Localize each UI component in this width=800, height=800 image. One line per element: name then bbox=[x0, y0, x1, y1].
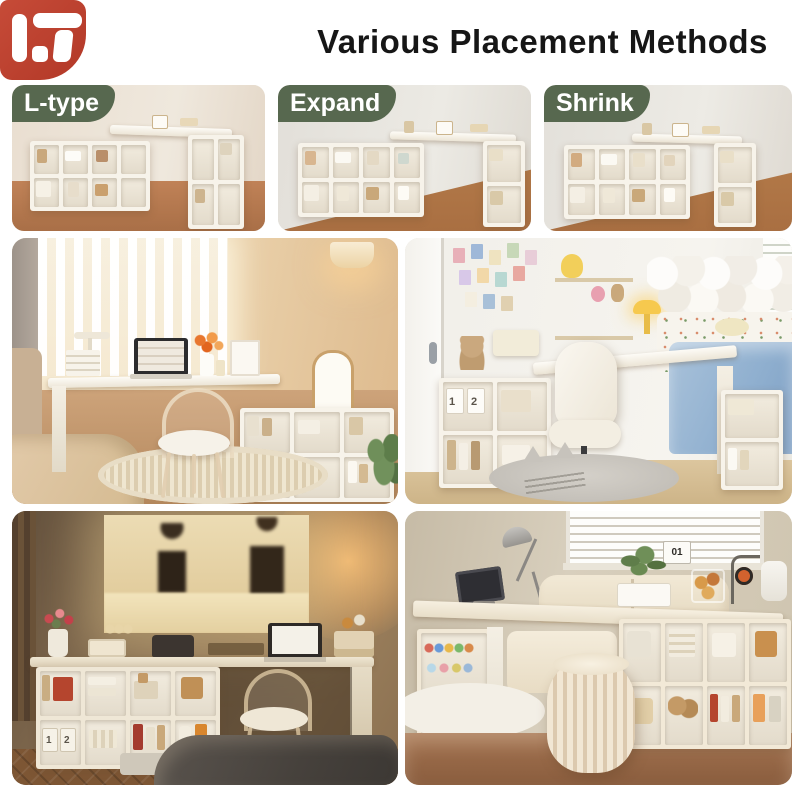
typewriter bbox=[152, 635, 194, 657]
egg-tray bbox=[104, 623, 134, 635]
white-speaker bbox=[761, 561, 787, 601]
box-number: 1 bbox=[46, 735, 56, 747]
cubby-cell bbox=[725, 442, 779, 486]
cubby-cell bbox=[130, 671, 171, 716]
box-number: 2 bbox=[471, 396, 483, 410]
photo-bedroom-corner-desk bbox=[12, 238, 398, 504]
thumb-l-type: L-type bbox=[12, 85, 265, 231]
plant bbox=[364, 434, 398, 490]
cubby-cell bbox=[707, 686, 745, 745]
cubby-cell bbox=[394, 182, 421, 213]
desk-leg bbox=[52, 386, 66, 472]
cubby-cell bbox=[599, 149, 626, 180]
flowers bbox=[40, 607, 76, 633]
paper-tray bbox=[66, 350, 100, 376]
radio bbox=[88, 639, 126, 657]
desk-decor bbox=[642, 123, 652, 135]
thumb-expand: Expand bbox=[278, 85, 531, 231]
plush-toy bbox=[561, 254, 583, 278]
badge-expand: Expand bbox=[278, 85, 396, 122]
cubby-cell bbox=[725, 394, 779, 438]
arch-mirror bbox=[312, 350, 354, 413]
cubby-cell bbox=[394, 147, 421, 178]
cubby-cell bbox=[497, 382, 547, 431]
cubby-cell bbox=[718, 147, 752, 183]
desk-decor bbox=[180, 118, 198, 126]
cubby-cell bbox=[660, 184, 687, 215]
cat-rug-ear bbox=[523, 446, 543, 462]
cubby-cell bbox=[629, 149, 656, 180]
teddy-bears bbox=[668, 696, 698, 724]
cubby-cell bbox=[121, 145, 146, 174]
bottles bbox=[340, 611, 370, 631]
projection-figure bbox=[152, 523, 192, 593]
teddy-bear bbox=[457, 336, 487, 370]
cubby-shelf bbox=[619, 619, 791, 749]
cat-rug-ear bbox=[555, 442, 575, 458]
cubby-cell bbox=[665, 686, 703, 745]
laptop-base bbox=[264, 657, 326, 662]
pen-cup bbox=[216, 360, 225, 376]
cubby-cell bbox=[218, 184, 240, 225]
badge-shrink: Shrink bbox=[544, 85, 650, 122]
wall-card bbox=[507, 243, 519, 258]
planter-box bbox=[617, 583, 671, 607]
thumb-shrink: Shrink bbox=[544, 85, 792, 231]
wall-card bbox=[453, 248, 465, 263]
dark-bed bbox=[154, 735, 398, 785]
laptop-base bbox=[130, 374, 192, 379]
desk-decor bbox=[404, 121, 414, 133]
cubby-cell bbox=[85, 671, 126, 716]
cubby-cell bbox=[302, 147, 329, 178]
box-number: 1 bbox=[449, 396, 461, 410]
desk-side-cubby bbox=[721, 390, 783, 490]
stool-top bbox=[553, 653, 629, 675]
side-cubby-unit bbox=[714, 143, 756, 227]
wall-projection bbox=[104, 515, 309, 633]
cubby-cell bbox=[192, 184, 214, 225]
flowers bbox=[190, 330, 224, 356]
page-title: Various Placement Methods bbox=[295, 16, 790, 68]
wall-card bbox=[459, 270, 471, 285]
cubby-shelf bbox=[298, 143, 424, 217]
file-rack bbox=[230, 340, 260, 376]
wall-card bbox=[501, 296, 513, 311]
cubby-cell bbox=[92, 145, 117, 174]
photo-sofa-back-desk: 01 bbox=[405, 511, 792, 785]
laptop bbox=[134, 338, 188, 376]
flower-jug bbox=[48, 629, 68, 657]
plant bbox=[613, 545, 671, 585]
bubble-headboard bbox=[647, 256, 792, 314]
cubby-cell bbox=[192, 139, 214, 180]
desk-decor bbox=[152, 115, 168, 129]
wall-card bbox=[495, 272, 507, 287]
desk-lamp bbox=[74, 332, 110, 339]
side-cubby-unit bbox=[483, 141, 525, 227]
toy bbox=[611, 284, 624, 302]
wall-card bbox=[513, 266, 525, 281]
cubby-cell bbox=[665, 623, 703, 682]
cubby-cell bbox=[63, 145, 88, 174]
cubby-cell bbox=[568, 149, 595, 180]
headphones bbox=[735, 567, 753, 585]
cubby-cell bbox=[363, 182, 390, 213]
cubby-cell bbox=[487, 145, 521, 182]
desk-decor bbox=[702, 126, 720, 134]
cubby-cell bbox=[487, 186, 521, 223]
desk-clutter bbox=[208, 643, 264, 655]
wall-card bbox=[525, 250, 537, 265]
cubby-cell bbox=[218, 139, 240, 180]
cubby-cell bbox=[660, 149, 687, 180]
cubby-cell bbox=[34, 145, 59, 174]
cubby-cell bbox=[363, 147, 390, 178]
wall-lamp bbox=[330, 242, 374, 268]
cubby-cell bbox=[718, 187, 752, 223]
logo-tbar-icon bbox=[33, 13, 82, 28]
cubby-shelf bbox=[564, 145, 690, 219]
logo-stem-icon bbox=[52, 30, 73, 62]
cubby-cell bbox=[92, 178, 117, 207]
laptop bbox=[268, 623, 322, 659]
wall-card bbox=[471, 244, 483, 259]
door-handle bbox=[429, 342, 437, 364]
logo-bar-icon bbox=[12, 14, 27, 62]
cubby-cell bbox=[623, 623, 661, 682]
desk-decor bbox=[672, 123, 689, 137]
cubby-cell: 1 2 bbox=[443, 382, 493, 431]
cosmetics-caddy bbox=[334, 631, 374, 657]
cubby-cell bbox=[121, 178, 146, 207]
calendar-day: 01 bbox=[671, 547, 682, 558]
cubby-cell bbox=[63, 178, 88, 207]
curtain bbox=[12, 511, 36, 721]
desk-decor bbox=[470, 124, 488, 132]
cubby-cell bbox=[443, 435, 493, 484]
cream-box bbox=[493, 330, 539, 356]
plush-on-bed bbox=[715, 318, 749, 336]
cubby-cell bbox=[333, 147, 360, 178]
projection-figure bbox=[244, 517, 290, 603]
box-number: 2 bbox=[64, 735, 74, 747]
cubby-cell bbox=[34, 178, 59, 207]
badge-l-type: L-type bbox=[12, 85, 115, 122]
cubby-cell: 1 2 bbox=[40, 720, 81, 765]
cubby-cell bbox=[302, 182, 329, 213]
desk-decor bbox=[436, 121, 453, 135]
flower-vase bbox=[200, 354, 214, 376]
ghost-chair-leg bbox=[192, 454, 196, 494]
cubby-shelf bbox=[30, 141, 150, 211]
logo-dot-icon bbox=[32, 46, 48, 62]
photo-bedroom-desk-by-bed: 1 2 bbox=[405, 238, 792, 504]
brand-logo bbox=[0, 0, 86, 80]
cubby-cell bbox=[40, 671, 81, 716]
toy bbox=[591, 286, 605, 302]
headboard bbox=[12, 348, 42, 448]
product-infographic: Various Placement Methods L-type Expand bbox=[0, 0, 800, 800]
snack-jar bbox=[691, 569, 725, 603]
office-chair-back bbox=[555, 342, 617, 428]
photo-night-projection-desk: 1 2 bbox=[12, 511, 398, 785]
wall-card bbox=[477, 268, 489, 283]
cubby-cell bbox=[749, 686, 787, 745]
cubby-cell bbox=[568, 184, 595, 215]
cubby-cell bbox=[629, 184, 656, 215]
cubby-cell bbox=[294, 412, 340, 453]
wall-card bbox=[465, 292, 477, 307]
cubby-cell bbox=[599, 184, 626, 215]
cubby-cell bbox=[707, 623, 745, 682]
cubby-cell bbox=[175, 671, 216, 716]
wall-card bbox=[483, 294, 495, 309]
cubby-cell bbox=[749, 623, 787, 682]
cubby-cell bbox=[333, 182, 360, 213]
side-cubby-unit bbox=[188, 135, 244, 229]
wall-card bbox=[489, 250, 501, 265]
mushroom-lamp-stem bbox=[644, 314, 650, 334]
